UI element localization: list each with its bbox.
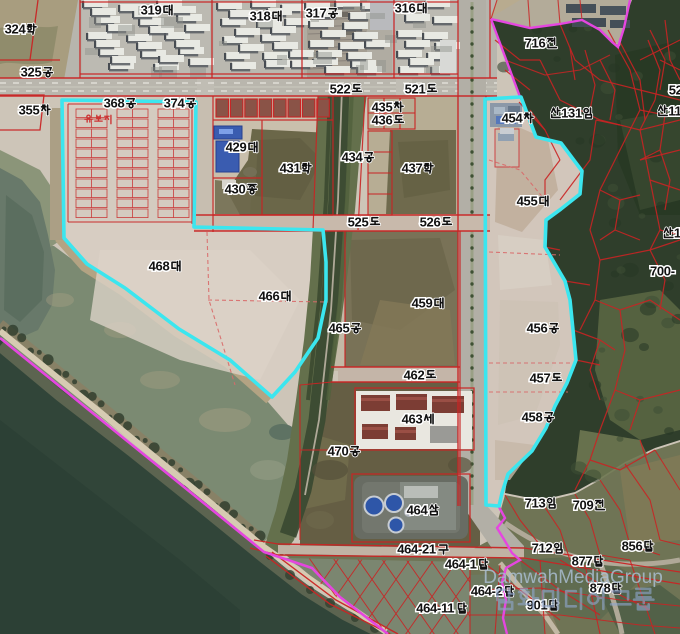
svg-text:458: 458: [522, 410, 543, 425]
svg-text:459: 459: [412, 296, 433, 311]
svg-text:434: 434: [342, 150, 364, 165]
svg-text:454: 454: [502, 111, 524, 126]
svg-text:464-11: 464-11: [416, 601, 454, 616]
svg-text:466: 466: [259, 289, 280, 304]
svg-text:437: 437: [402, 161, 423, 176]
svg-text:431: 431: [280, 161, 301, 176]
svg-text:712: 712: [532, 541, 553, 556]
svg-text:700-: 700-: [650, 264, 675, 279]
svg-text:455: 455: [517, 194, 538, 209]
svg-text:464-1: 464-1: [445, 557, 477, 572]
svg-text:526: 526: [420, 215, 441, 230]
svg-text:316: 316: [395, 1, 416, 16]
svg-text:716: 716: [525, 36, 546, 51]
svg-text:429: 429: [226, 140, 247, 155]
svg-text:457: 457: [530, 371, 551, 386]
svg-text:131: 131: [561, 106, 582, 121]
svg-text:1: 1: [674, 226, 680, 241]
svg-text:368: 368: [104, 96, 125, 111]
svg-text:324: 324: [5, 22, 27, 37]
svg-text:11: 11: [668, 104, 680, 119]
svg-text:468: 468: [149, 259, 170, 274]
svg-text:465: 465: [329, 321, 350, 336]
svg-text:464: 464: [407, 503, 429, 518]
svg-text:470: 470: [328, 444, 349, 459]
svg-text:436: 436: [372, 113, 393, 128]
svg-text:DamwahMediaGroup: DamwahMediaGroup: [483, 567, 663, 588]
svg-text:325: 325: [21, 65, 42, 80]
svg-text:355: 355: [19, 103, 40, 118]
svg-text:522: 522: [330, 82, 351, 97]
svg-text:856: 856: [622, 539, 643, 554]
svg-text:318: 318: [250, 9, 271, 24]
svg-text:456: 456: [527, 321, 548, 336]
svg-text:463: 463: [402, 412, 423, 427]
svg-text:713: 713: [525, 496, 546, 511]
svg-text:525: 525: [348, 215, 369, 230]
svg-text:52: 52: [669, 83, 680, 98]
svg-text:374: 374: [164, 96, 186, 111]
svg-text:709: 709: [573, 498, 594, 513]
svg-text:521: 521: [405, 82, 426, 97]
svg-text:464-21: 464-21: [397, 542, 436, 557]
svg-text:319: 319: [141, 3, 162, 18]
svg-text:317: 317: [306, 6, 327, 21]
svg-text:430: 430: [225, 182, 246, 197]
svg-text:462: 462: [404, 368, 425, 383]
